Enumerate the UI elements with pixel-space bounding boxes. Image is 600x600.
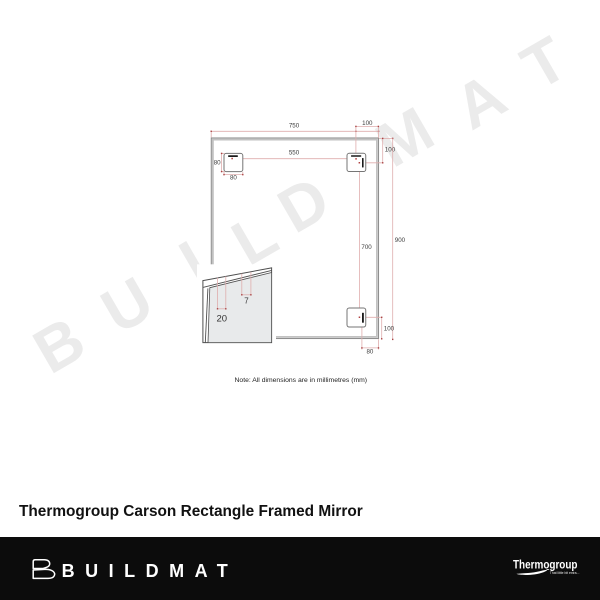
- svg-text:80: 80: [230, 174, 237, 181]
- svg-text:700: 700: [361, 244, 372, 251]
- svg-text:D: D: [267, 163, 341, 246]
- svg-text:U: U: [90, 264, 164, 347]
- svg-text:That little bit extra...: That little bit extra...: [550, 571, 580, 575]
- svg-text:100: 100: [362, 120, 373, 127]
- svg-text:BUILDMAT: BUILDMAT: [62, 561, 239, 581]
- svg-text:80: 80: [214, 159, 221, 166]
- svg-text:750: 750: [289, 123, 300, 130]
- svg-text:100: 100: [384, 325, 395, 332]
- svg-text:Thermogroup: Thermogroup: [513, 559, 578, 571]
- svg-text:A: A: [443, 60, 517, 143]
- svg-text:T: T: [510, 24, 578, 104]
- svg-text:Note: All dimensions are in mi: Note: All dimensions are in millimetres …: [235, 377, 368, 384]
- svg-text:550: 550: [289, 150, 300, 157]
- svg-text:900: 900: [395, 237, 406, 244]
- svg-text:100: 100: [385, 146, 396, 153]
- svg-text:7: 7: [244, 297, 249, 306]
- svg-text:B: B: [22, 304, 96, 387]
- svg-text:80: 80: [366, 349, 373, 356]
- svg-text:20: 20: [217, 314, 228, 325]
